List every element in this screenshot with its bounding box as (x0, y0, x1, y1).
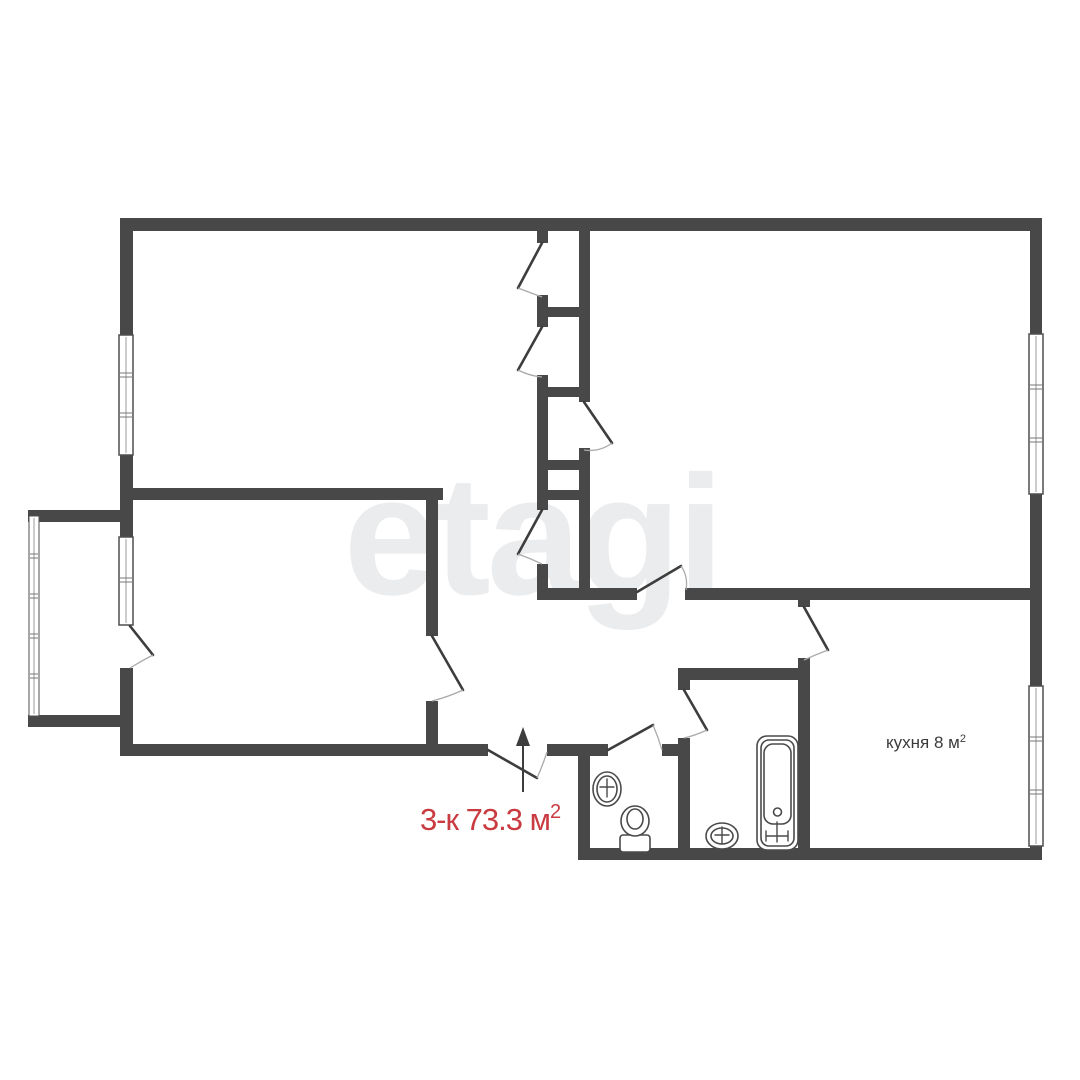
entrance-door-arc (537, 752, 547, 778)
outer-wall-left-upper (120, 231, 133, 335)
balcony-glazing (29, 516, 39, 716)
closet-shelf-3 (537, 460, 590, 470)
entrance-door (488, 750, 547, 778)
balcony-bottom-wall (28, 715, 120, 727)
room3-bottom-wall (120, 488, 443, 500)
floor-plan: etagi кухня 8 м2 3-к 73.3 м2 (0, 0, 1080, 1080)
toilet-door (608, 725, 662, 750)
balcony-door (130, 626, 153, 668)
bottom-wall-mid (547, 744, 608, 756)
room1-right-wall-upper (426, 500, 438, 636)
entrance-arrow-head (516, 727, 530, 746)
closet-door-1-arc (518, 288, 542, 297)
fixtures-layer (593, 736, 798, 852)
bathroom-door (684, 690, 707, 738)
toilet-bowl-inner (627, 809, 643, 829)
hall-bottom-wall-b (685, 588, 1030, 600)
floor-plan-page: etagi кухня 8 м2 3-к 73.3 м2 (0, 0, 1080, 1080)
closet-door-3-leaf (584, 402, 612, 443)
etagi-watermark: etagi (344, 441, 721, 631)
balcony-door-arc (130, 655, 153, 668)
outer-wall-right-upper (1030, 231, 1042, 334)
closet-right-wall-lower (579, 448, 590, 597)
outer-wall-top (120, 218, 1042, 231)
kitchen-room-label: кухня 8 м2 (886, 733, 966, 752)
bathroom-door-arc (684, 730, 707, 738)
bathtub-drain (774, 808, 782, 816)
kitchen-left-wall (798, 658, 810, 860)
room1-door (432, 636, 463, 701)
closet-left-stub-3 (537, 564, 548, 597)
apartment-area-label: 3-к 73.3 м2 (420, 801, 561, 837)
bathroom-door-leaf (684, 690, 707, 730)
closet-door-2-arc (518, 370, 542, 377)
outer-wall-right-mid (1030, 494, 1042, 686)
room1-door-arc (432, 690, 463, 701)
bottom-wall-left (120, 744, 488, 756)
closet-door-1 (518, 243, 542, 297)
entrance-arrow-layer (516, 727, 530, 792)
closet-left-stub-1 (537, 231, 548, 243)
window-room1-left (119, 537, 133, 625)
balcony-door-leaf (130, 626, 153, 655)
closet-shelf-2 (537, 387, 590, 397)
toilet-tank (620, 835, 650, 852)
window-room2-right (1029, 334, 1043, 494)
bathroom-divider-wall (678, 738, 690, 848)
window-kitchen-right (1029, 686, 1043, 846)
toilet-door-arc (653, 725, 662, 750)
closet-door-2-leaf (518, 327, 542, 370)
bathroom-divider-stub (678, 680, 690, 690)
closet-shelf-1 (537, 307, 590, 317)
bathroom-top-wall (678, 668, 798, 680)
kitchen-door-arc (804, 650, 828, 660)
closet-shelf-4 (537, 490, 590, 500)
room1-door-leaf (432, 636, 463, 690)
kitchen-door-leaf (804, 607, 828, 650)
outer-wall-left-lower (120, 668, 133, 756)
closet-door-1-leaf (518, 243, 542, 288)
balcony-top-wall (28, 510, 120, 522)
entrance-door-leaf (488, 750, 537, 778)
toilet-left-wall (578, 756, 590, 848)
window-room3-left (119, 335, 133, 455)
closet-door-2 (518, 327, 542, 377)
kitchen-door (804, 607, 828, 660)
toilet-door-leaf (608, 725, 653, 750)
